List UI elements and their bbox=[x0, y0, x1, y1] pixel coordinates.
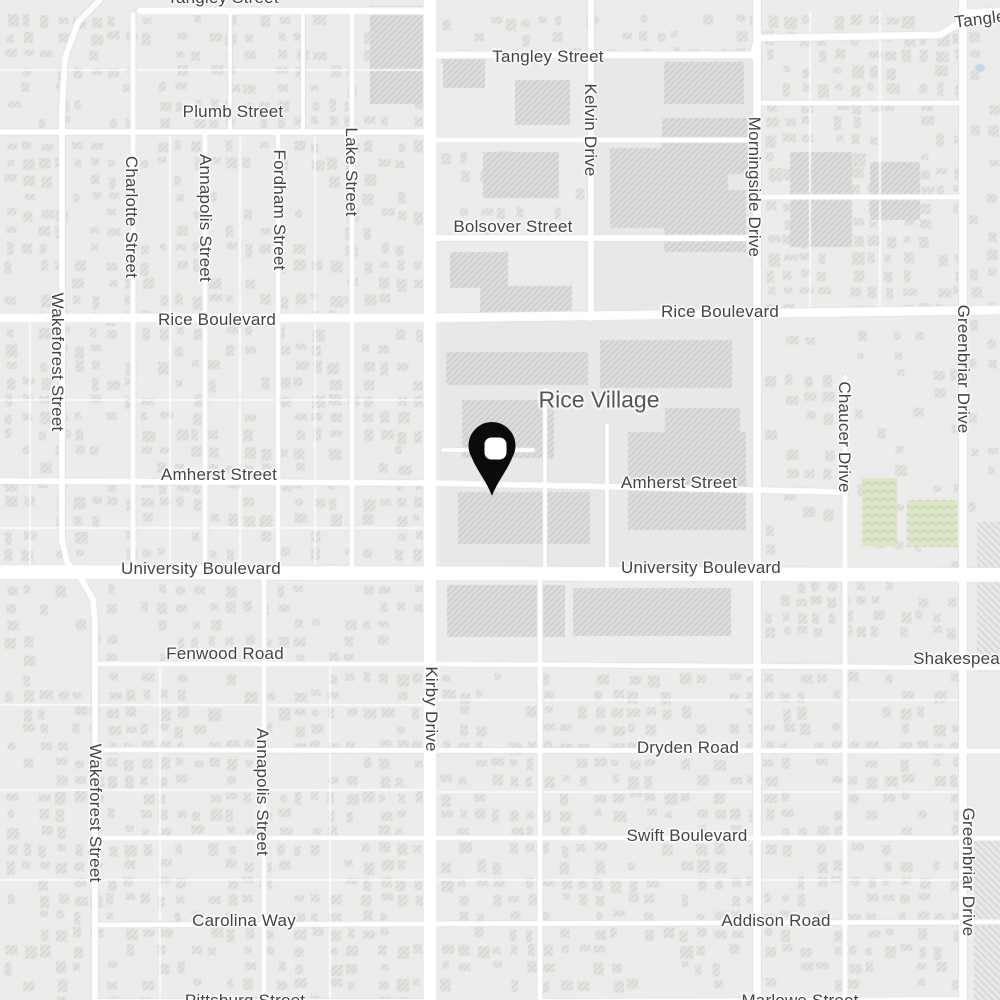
map-canvas[interactable]: Rice Village Tangley StreetTangley Stree… bbox=[0, 0, 1000, 1000]
location-pin-icon[interactable] bbox=[467, 419, 517, 497]
map-tiles-layer bbox=[0, 0, 1000, 1000]
